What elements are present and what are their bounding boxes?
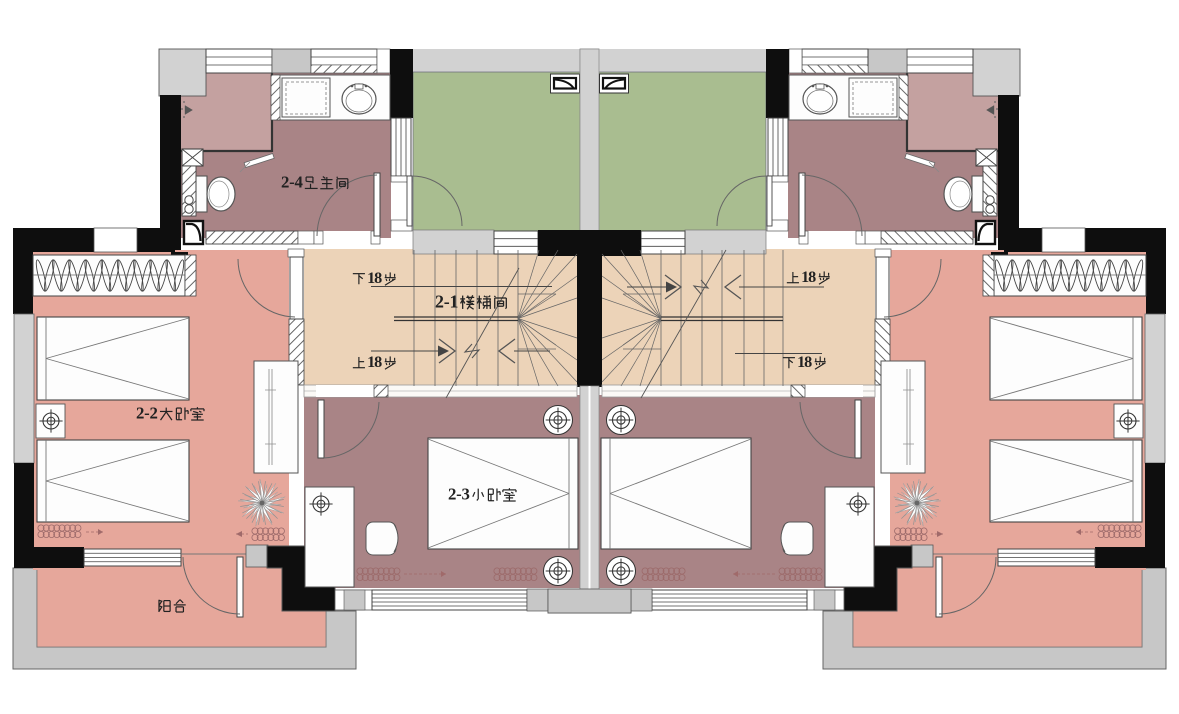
svg-text:18: 18	[367, 353, 382, 371]
svg-text:2-1: 2-1	[435, 291, 458, 311]
svg-text:18: 18	[801, 268, 816, 286]
svg-text:18: 18	[367, 269, 382, 287]
svg-text:2-4: 2-4	[281, 173, 304, 192]
svg-text:2-3: 2-3	[448, 485, 470, 504]
svg-text:2-2: 2-2	[136, 404, 158, 423]
svg-text:18: 18	[797, 353, 812, 371]
